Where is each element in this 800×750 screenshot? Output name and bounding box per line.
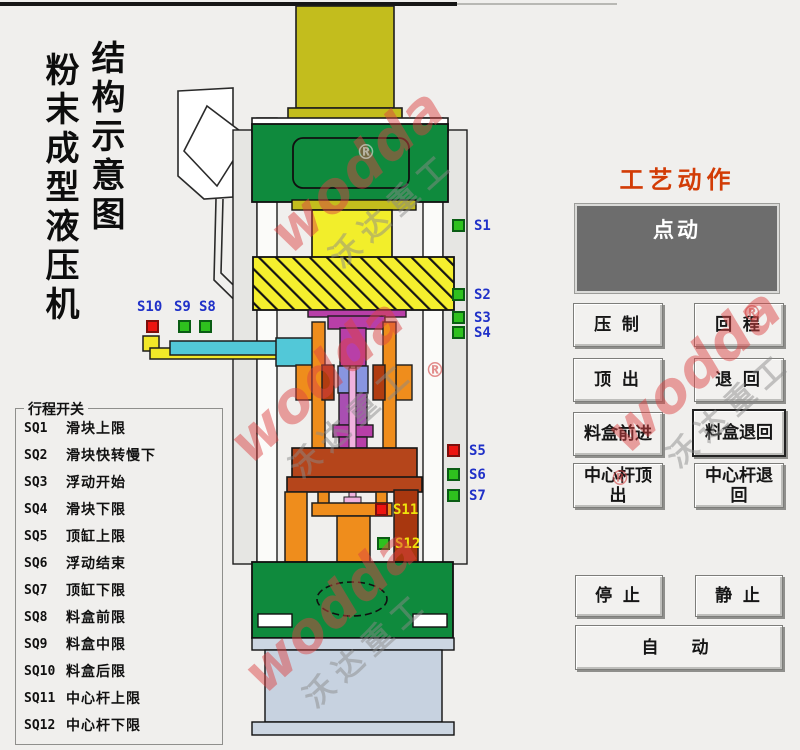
sensor-label-s5: S5: [469, 443, 486, 459]
sensor-label-s9: S9: [174, 299, 191, 315]
top-cylinder: [252, 6, 448, 132]
jog-mode-display[interactable]: 点动: [575, 204, 779, 293]
sensor-indicator-s10: [146, 320, 159, 333]
legend-title: 行程开关: [24, 399, 88, 419]
press-button[interactable]: 压 制: [573, 303, 663, 347]
sensor-indicator-s5: [447, 444, 460, 457]
sensor-label-s6: S6: [469, 467, 486, 483]
sensor-indicator-s1: [452, 219, 465, 232]
legend-item: SQ5顶缸上限: [24, 526, 126, 546]
legend-item: SQ1滑块上限: [24, 418, 126, 438]
legend-item: SQ7顶缸下限: [24, 580, 126, 600]
sensor-indicator-s11: [375, 503, 388, 516]
sensor-indicator-s7: [447, 489, 460, 502]
sensor-label-s2: S2: [474, 287, 491, 303]
auto-button[interactable]: 自 动: [575, 625, 783, 670]
legend-item: SQ3浮动开始: [24, 472, 126, 492]
legend-item: SQ4滑块下限: [24, 499, 126, 519]
box-forward-button[interactable]: 料盒前进: [573, 412, 663, 456]
return-button[interactable]: 回 程: [694, 303, 784, 347]
sensor-label-s10: S10: [137, 299, 162, 315]
jog-mode-label: 点动: [577, 214, 777, 244]
top-crossbeam: [252, 124, 448, 258]
rod-eject-button[interactable]: 中心杆顶出: [573, 463, 663, 508]
sensor-label-s8: S8: [199, 299, 216, 315]
machine-base: [252, 562, 454, 735]
panel-title: 工艺动作: [575, 160, 780, 195]
rod-back-button[interactable]: 中心杆退回: [694, 463, 784, 508]
sensor-indicator-s8: [199, 320, 212, 333]
legend-item: SQ9料盒中限: [24, 634, 126, 654]
sensor-label-s7: S7: [469, 488, 486, 504]
legend-item: SQ6浮动结束: [24, 553, 126, 573]
legend-item: SQ2滑块快转慢下: [24, 445, 156, 465]
sensor-label-s12: S12: [395, 536, 420, 552]
hmi-screen: 结构示意图 粉末成型液压机: [0, 0, 800, 750]
slide-block: [253, 257, 454, 310]
limit-switch-legend: 行程开关 SQ1滑块上限 SQ2滑块快转慢下 SQ3浮动开始 SQ4滑块下限 S…: [15, 408, 223, 745]
sensor-indicator-s3: [452, 311, 465, 324]
sensor-indicator-s6: [447, 468, 460, 481]
sensor-label-s3: S3: [474, 310, 491, 326]
die-table: [287, 448, 422, 492]
legend-item: SQ10料盒后限: [24, 661, 126, 681]
sensor-label-s4: S4: [474, 325, 491, 341]
sensor-indicator-s2: [452, 288, 465, 301]
sensor-indicator-s9: [178, 320, 191, 333]
still-button[interactable]: 静 止: [695, 575, 783, 617]
sensor-indicator-s12: [377, 537, 390, 550]
stop-button[interactable]: 停 止: [575, 575, 663, 617]
eject-button[interactable]: 顶 出: [573, 358, 663, 402]
legend-item: SQ11中心杆上限: [24, 688, 141, 708]
box-back-button[interactable]: 料盒退回: [692, 409, 786, 457]
sensor-indicator-s4: [452, 326, 465, 339]
legend-item: SQ8料盒前限: [24, 607, 126, 627]
legend-item: SQ12中心杆下限: [24, 715, 141, 735]
sensor-label-s1: S1: [474, 218, 491, 234]
retreat-button[interactable]: 退 回: [694, 358, 784, 402]
sensor-label-s11: S11: [393, 502, 418, 518]
